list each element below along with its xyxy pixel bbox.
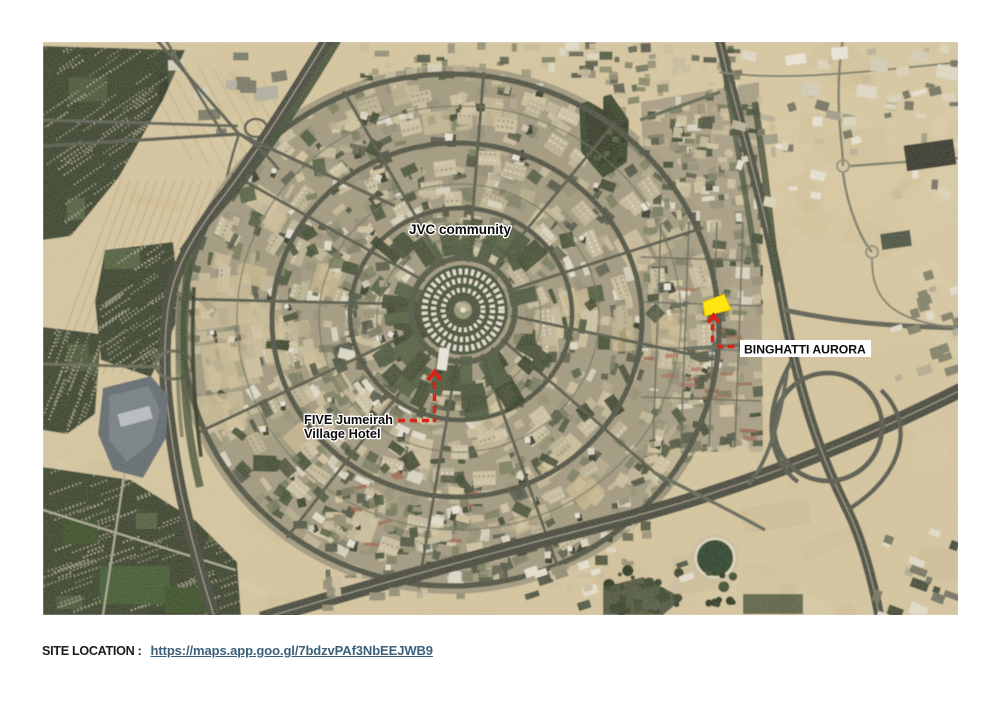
svg-text:JVC community: JVC community — [409, 222, 512, 237]
svg-text:Village Hotel: Village Hotel — [304, 426, 381, 441]
svg-text:BINGHATTI AURORA: BINGHATTI AURORA — [744, 343, 866, 357]
svg-text:FIVE Jumeirah: FIVE Jumeirah — [304, 412, 393, 427]
